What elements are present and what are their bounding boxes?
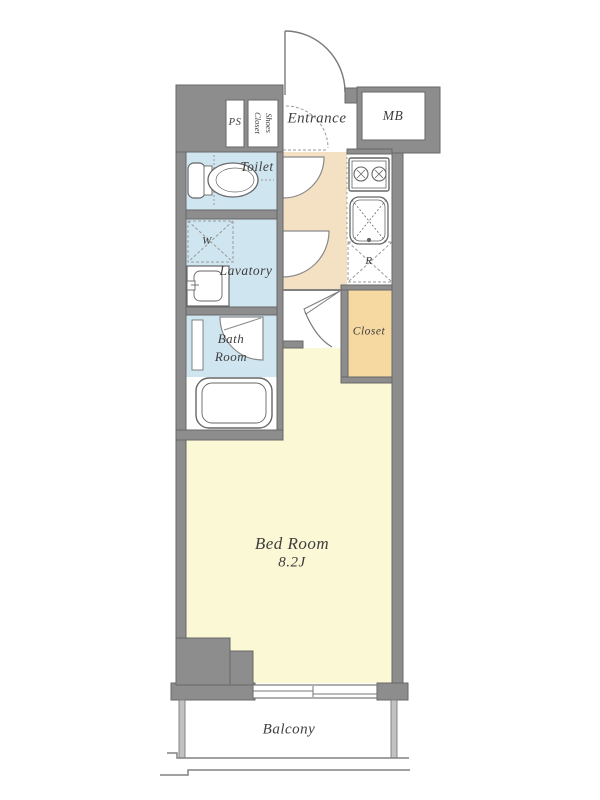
label-washer: W bbox=[202, 234, 212, 248]
wall-segment bbox=[230, 651, 253, 685]
wall-segment bbox=[176, 638, 230, 685]
bathtub bbox=[196, 378, 272, 428]
label-closet: Closet bbox=[353, 325, 385, 340]
wall-segment bbox=[341, 290, 348, 383]
label-pipe-space: PS bbox=[229, 116, 242, 130]
wall-segment bbox=[377, 683, 408, 700]
label-entrance: Entrance bbox=[288, 109, 347, 129]
bath-counter bbox=[192, 320, 203, 370]
label-fridge: R bbox=[365, 254, 372, 268]
wall-segment bbox=[283, 341, 303, 348]
wall-segment bbox=[345, 88, 357, 103]
balcony-boundary-line bbox=[160, 770, 410, 775]
sliding-window bbox=[253, 685, 377, 698]
label-shoes-closet-line2: Closet bbox=[252, 112, 263, 134]
label-balcony: Balcony bbox=[263, 720, 316, 740]
label-bath-room: Bath Room bbox=[215, 330, 247, 366]
label-bath-line2: Room bbox=[215, 348, 247, 366]
wall-segment bbox=[171, 683, 255, 700]
kitchen-sink bbox=[350, 197, 388, 244]
wall-segment bbox=[277, 152, 283, 440]
balcony-partition-right bbox=[391, 700, 397, 758]
sink-drain bbox=[367, 238, 370, 241]
wall-segment bbox=[186, 307, 280, 315]
label-shoes-closet: Shoes Closet bbox=[252, 112, 274, 134]
wall-segment bbox=[186, 210, 277, 219]
balcony-railing-line bbox=[167, 753, 409, 758]
label-bedroom-area: 8.2J bbox=[278, 553, 305, 573]
wall-segment bbox=[392, 153, 403, 690]
balcony-partition-left bbox=[179, 700, 185, 758]
wall-segment bbox=[176, 430, 283, 440]
stove bbox=[349, 158, 389, 191]
label-bath-line1: Bath bbox=[215, 330, 247, 348]
label-meter-box: MB bbox=[383, 107, 404, 125]
wall-segment bbox=[341, 377, 392, 383]
label-bedroom-name: Bed Room bbox=[255, 533, 329, 555]
entrance-door-swing bbox=[285, 31, 345, 92]
wall-segment bbox=[347, 149, 392, 154]
label-lavatory: Lavatory bbox=[220, 262, 273, 280]
floor-plan: PS Shoes Closet Entrance MB Toilet W Lav… bbox=[0, 0, 600, 800]
label-toilet: Toilet bbox=[240, 158, 273, 176]
wall-segment bbox=[341, 285, 392, 290]
label-shoes-closet-line1: Shoes bbox=[263, 112, 274, 134]
bedroom-doorway-floor bbox=[283, 290, 341, 348]
wall-segment bbox=[176, 152, 186, 700]
